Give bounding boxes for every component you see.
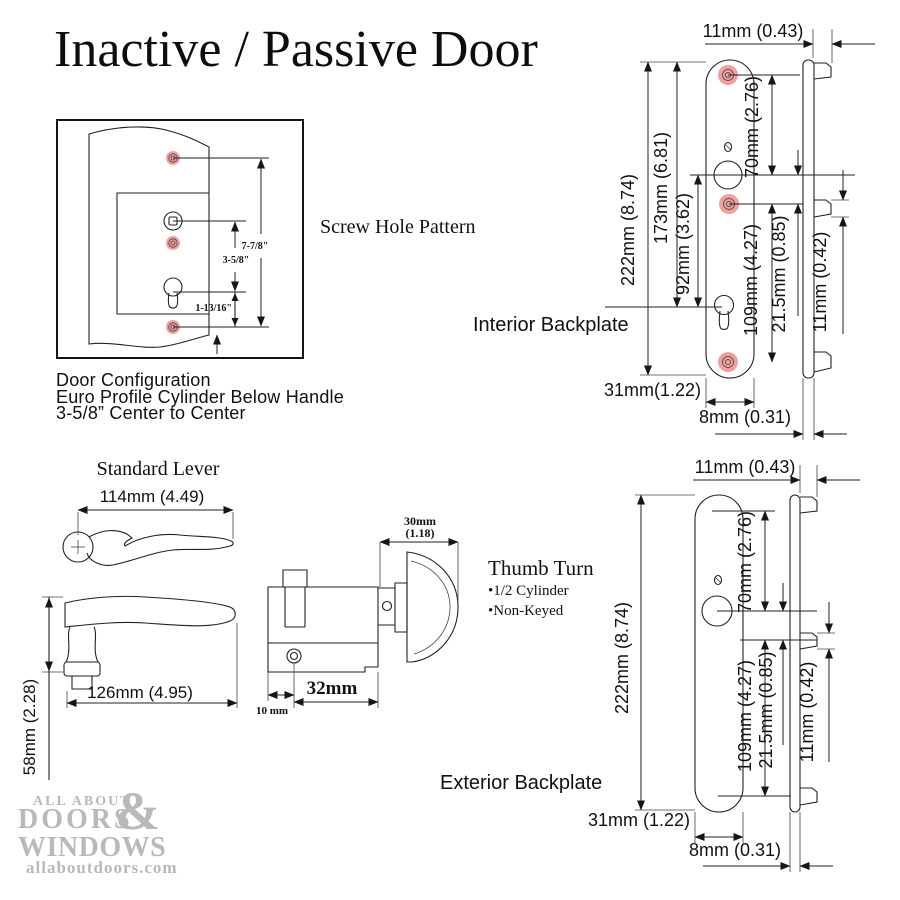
interior-euro-keyhole xyxy=(715,296,734,330)
lever-dim-126: 126mm (4.95) xyxy=(87,683,193,702)
cylinder-dim-30b: (1.18) xyxy=(406,526,435,540)
exterior-small-hole xyxy=(715,576,722,585)
exterior-dim-31: 31mm (1.22) xyxy=(588,810,690,830)
door-configuration-text: Door Configuration Euro Profile Cylinder… xyxy=(56,372,344,422)
exterior-plate-side xyxy=(790,495,800,812)
dim-11316-arrow-up xyxy=(232,293,239,301)
exterior-dim-8: 8mm (0.31) xyxy=(689,840,781,860)
lever-dim-58: 58mm (2.28) xyxy=(20,679,39,775)
dim-11316-arrow-down xyxy=(232,318,239,326)
interior-dim-215: 21.5mm (0.85) xyxy=(769,215,789,332)
dim-778-label: 7-7/8" xyxy=(242,241,269,252)
lever-top-view xyxy=(63,531,233,566)
exterior-dim-215: 21.5mm (0.85) xyxy=(756,651,776,768)
interior-small-hole xyxy=(725,143,732,152)
screw-hole-pattern-diagram: 7-7/8" 3-5/8" 1-13/16" xyxy=(58,121,302,357)
cylinder-diagram: 30mm (1.18) 32mm 10 mm xyxy=(250,505,480,720)
dim-11316-label: 1-13/16" xyxy=(195,303,232,314)
exterior-dim-top-width: 11mm (0.43) xyxy=(695,457,796,477)
thumb-turn-bullet-2: •Non-Keyed xyxy=(488,601,594,621)
exterior-side-tab-middle xyxy=(800,633,817,649)
logo-website: allaboutdoors.com xyxy=(26,858,178,878)
standard-lever-label: Standard Lever xyxy=(97,458,220,480)
interior-side-tab-middle xyxy=(814,200,831,217)
cylinder-dim-10: 10 mm xyxy=(256,705,288,717)
cylinder-screw xyxy=(287,649,301,663)
page: Inactive / Passive Door xyxy=(0,0,900,900)
cylinder-dim-32: 32mm xyxy=(307,678,358,699)
backplate-recess xyxy=(117,193,209,314)
lever-dim-114: 114mm (4.49) xyxy=(100,487,205,506)
exterior-backplate-label: Exterior Backplate xyxy=(440,772,602,795)
thumb-turn-bullet-1: •1/2 Cylinder xyxy=(488,581,594,601)
lever-side-view xyxy=(64,596,235,689)
logo: ALL ABOUT & DOORS WINDOWS allaboutdoors.… xyxy=(18,790,208,890)
interior-side-tab-bottom xyxy=(814,352,831,372)
door-configuration-line3: 3-5/8” Center to Center xyxy=(56,405,344,422)
interior-dim-92: 92mm (3.62) xyxy=(673,193,693,295)
exterior-dim-11: 11mm (0.42) xyxy=(797,662,817,763)
interior-dim-top-width: 11mm (0.43) xyxy=(703,21,804,41)
interior-backplate-label: Interior Backplate xyxy=(473,314,629,337)
cylinder-cam xyxy=(283,570,307,627)
thumb-turn-title: Thumb Turn xyxy=(488,556,594,581)
interior-dim-31: 31mm(1.22) xyxy=(604,380,701,400)
screw-hole-middle xyxy=(166,236,180,250)
exterior-dim-70: 70mm (2.76) xyxy=(735,511,755,613)
interior-dim-222: 222mm (8.74) xyxy=(618,174,638,286)
exterior-backplate-diagram: 11mm (0.43) 222mm (8.74) 70mm (2.76) 109… xyxy=(595,450,900,895)
exterior-dim-222: 222mm (8.74) xyxy=(612,602,632,714)
interior-side-tab-top xyxy=(814,63,831,79)
interior-screw-bottom xyxy=(718,352,738,372)
interior-dim-173: 173mm (6.81) xyxy=(651,132,671,244)
page-title: Inactive / Passive Door xyxy=(54,20,538,79)
euro-cylinder-hole xyxy=(164,278,182,308)
thumbturn-wing xyxy=(407,552,458,662)
thumb-turn-text: Thumb Turn •1/2 Cylinder •Non-Keyed xyxy=(488,556,594,621)
exterior-side-tab-bottom xyxy=(800,788,817,805)
exterior-side-tab-top xyxy=(800,497,817,513)
exterior-dim-109: 109mm (4.27) xyxy=(735,660,755,772)
interior-dim-70: 70mm (2.76) xyxy=(742,76,762,178)
interior-backplate-diagram: 11mm (0.43) 222mm (8.74) 173mm (6.81) 92… xyxy=(595,16,900,446)
interior-dim-8: 8mm (0.31) xyxy=(699,407,791,427)
dim-358-label: 3-5/8" xyxy=(223,255,250,266)
screw-hole-pattern-label: Screw Hole Pattern xyxy=(320,216,476,239)
interior-dim-11: 11mm (0.42) xyxy=(810,232,830,333)
standard-lever-diagram: Standard Lever 114mm (4.49) 126mm (4.95) xyxy=(15,455,265,790)
thumbturn-hub xyxy=(378,583,407,632)
interior-dim-109: 109mm (4.27) xyxy=(741,224,761,336)
screw-hole-pattern-box: 7-7/8" 3-5/8" 1-13/16" xyxy=(56,119,304,359)
